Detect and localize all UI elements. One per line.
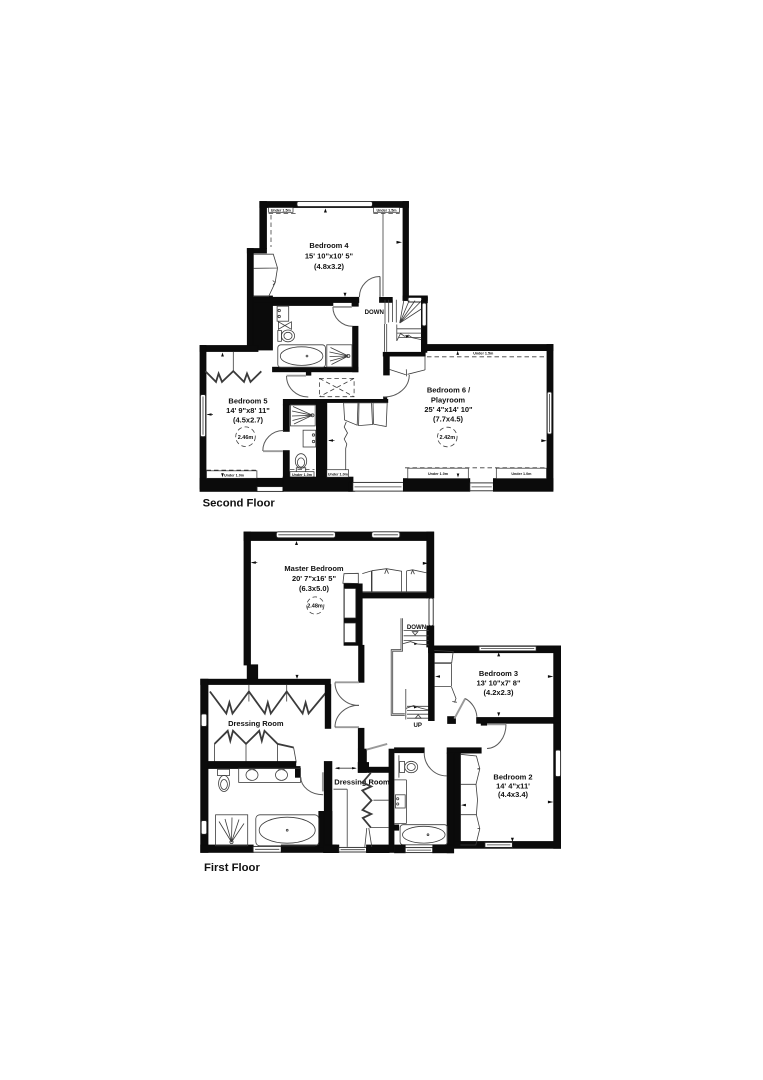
svg-text:2.46m: 2.46m (238, 435, 254, 441)
svg-text:(4.2x2.3): (4.2x2.3) (483, 688, 514, 697)
svg-text:Under 1.0m: Under 1.0m (511, 472, 532, 476)
svg-text:UP: UP (413, 722, 421, 729)
svg-text:Master Bedroom: Master Bedroom (284, 564, 344, 573)
svg-text:Dressing Room: Dressing Room (228, 719, 284, 728)
svg-text:Under 1.0m: Under 1.0m (292, 473, 313, 477)
svg-text:First Floor: First Floor (204, 862, 260, 874)
svg-text:Playroom: Playroom (431, 395, 466, 404)
svg-text:Under 1.5m: Under 1.5m (376, 208, 397, 212)
svg-text:(4.5x2.7): (4.5x2.7) (233, 416, 264, 425)
svg-text:25' 4"x14' 10": 25' 4"x14' 10" (424, 405, 473, 414)
svg-text:Bedroom 2: Bedroom 2 (493, 772, 532, 781)
svg-text:14' 9"x8' 11": 14' 9"x8' 11" (226, 406, 270, 415)
svg-text:Bedroom 5: Bedroom 5 (228, 397, 267, 406)
svg-text:Under 1.0m: Under 1.0m (428, 472, 449, 476)
svg-text:Under 1.0m: Under 1.0m (328, 473, 349, 477)
svg-text:(4.4x3.4): (4.4x3.4) (498, 790, 529, 799)
svg-text:13' 10"x7' 8": 13' 10"x7' 8" (476, 679, 520, 688)
svg-text:Under 1.5m: Under 1.5m (473, 351, 494, 355)
svg-text:Bedroom 4: Bedroom 4 (309, 241, 349, 250)
svg-text:DOWN: DOWN (365, 309, 384, 316)
svg-text:Bedroom 3: Bedroom 3 (479, 669, 518, 678)
svg-text:Under 1.5m: Under 1.5m (271, 208, 292, 212)
svg-text:15' 10"x10' 5": 15' 10"x10' 5" (305, 252, 354, 261)
svg-text:Bedroom 6 /: Bedroom 6 / (427, 386, 471, 395)
svg-text:Second Floor: Second Floor (203, 497, 276, 509)
svg-text:2.42m: 2.42m (439, 435, 455, 441)
svg-text:(7.7x4.5): (7.7x4.5) (433, 415, 464, 424)
svg-text:Under 1.0m: Under 1.0m (224, 473, 245, 477)
svg-text:20' 7"x16' 5": 20' 7"x16' 5" (292, 574, 336, 583)
svg-text:2.48m: 2.48m (307, 604, 323, 610)
svg-text:DOWN: DOWN (407, 624, 426, 631)
svg-text:(6.3x5.0): (6.3x5.0) (299, 584, 330, 593)
svg-text:(4.8x3.2): (4.8x3.2) (314, 262, 345, 271)
